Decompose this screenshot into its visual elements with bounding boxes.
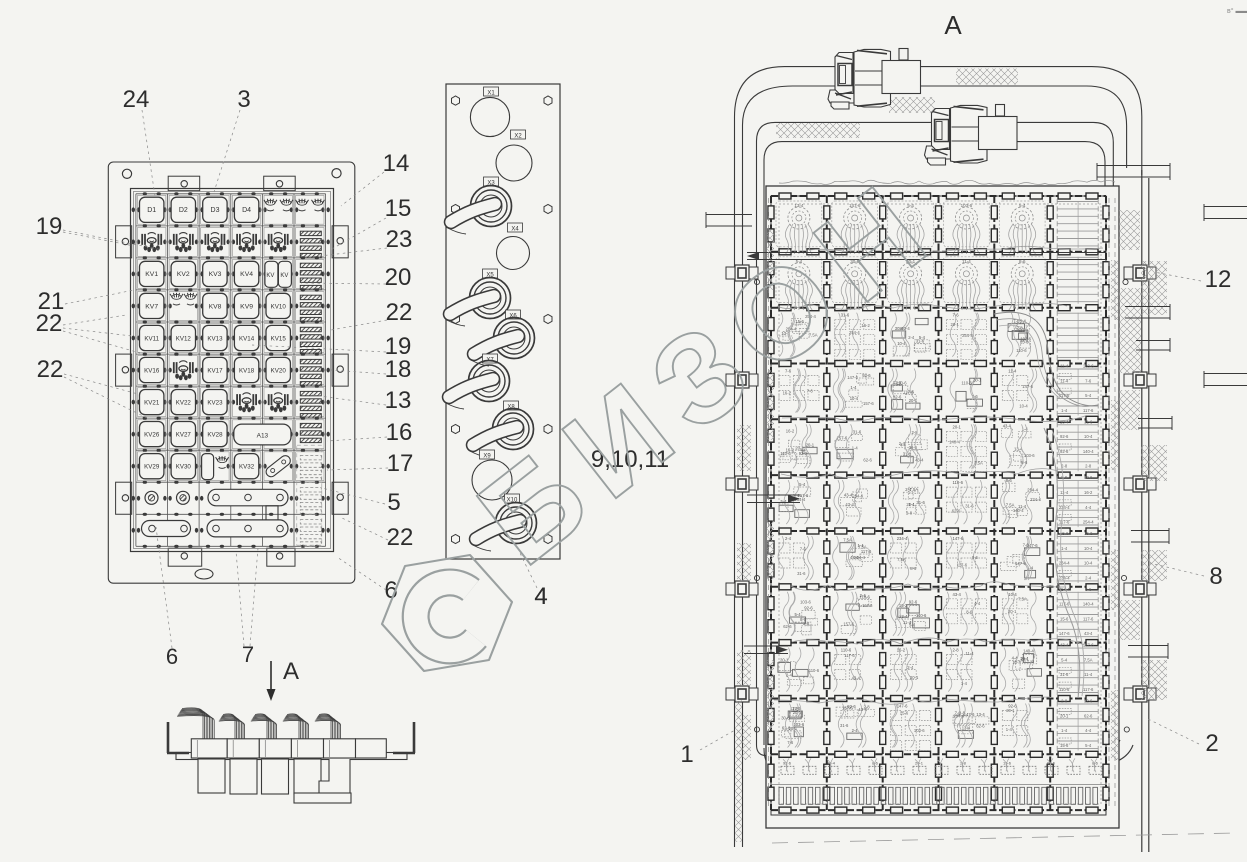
svg-text:140-4: 140-4 [1023,649,1034,654]
svg-text:KV: KV [280,273,288,279]
svg-text:15-6: 15-6 [1060,531,1069,536]
svg-text:43-4: 43-4 [852,676,861,681]
svg-text:15-6: 15-6 [1060,743,1069,748]
svg-text:62-6: 62-6 [976,723,985,728]
svg-text:92-6: 92-6 [804,605,813,610]
svg-text:117-6: 117-6 [1083,408,1094,413]
svg-text:2-4: 2-4 [1085,575,1092,580]
svg-text:2-8: 2-8 [906,511,913,516]
svg-text:234-4: 234-4 [953,713,964,718]
svg-text:2-4: 2-4 [907,665,914,670]
svg-text:11-4: 11-4 [1060,364,1069,369]
svg-text:7,5A: 7,5A [843,538,852,543]
svg-text:7-6: 7-6 [787,740,794,745]
svg-text:147-6: 147-6 [1022,384,1033,389]
svg-text:A: A [944,10,962,40]
svg-text:KV15: KV15 [271,335,287,342]
svg-text:KV16: KV16 [144,367,160,374]
svg-text:31-6: 31-6 [965,503,974,508]
svg-text:11-4: 11-4 [1060,490,1069,495]
svg-text:X2: X2 [514,134,522,140]
svg-text:1-4: 1-4 [852,445,859,450]
svg-text:13-4: 13-4 [976,712,985,717]
svg-text:16: 16 [386,419,413,446]
svg-text:147-6: 147-6 [1059,631,1070,636]
svg-text:7-6: 7-6 [807,389,814,394]
svg-text:234-4: 234-4 [897,536,908,541]
svg-text:7,5A: 7,5A [858,544,867,549]
svg-text:11-4: 11-4 [1060,378,1069,383]
svg-text:20: 20 [385,264,412,291]
svg-text:KV2: KV2 [177,271,190,278]
svg-text:92-6: 92-6 [1084,475,1093,480]
svg-text:103-6: 103-6 [914,728,925,733]
svg-text:110-6: 110-6 [809,668,820,673]
svg-text:31-6: 31-6 [853,430,862,435]
svg-text:2-4: 2-4 [908,335,915,340]
svg-text:30-6: 30-6 [909,445,918,450]
svg-text:147-6: 147-6 [847,375,858,380]
svg-text:10-4: 10-4 [1019,403,1028,408]
svg-text:KV1: KV1 [145,271,158,278]
svg-text:103-6: 103-6 [800,599,811,604]
svg-text:16-2: 16-2 [897,648,906,653]
svg-text:43-4: 43-4 [1084,631,1093,636]
svg-text:20-1: 20-1 [910,675,919,680]
svg-text:8-6: 8-6 [1085,587,1092,592]
svg-text:10-4: 10-4 [1084,561,1093,566]
svg-text:KV18: KV18 [239,367,255,374]
svg-text:D1: D1 [147,207,156,214]
svg-text:140-4: 140-4 [1013,508,1024,513]
svg-text:117-6: 117-6 [1083,687,1094,692]
svg-text:2-4: 2-4 [785,536,792,541]
svg-text:14: 14 [383,150,410,177]
svg-text:11-4: 11-4 [1084,672,1093,677]
svg-text:5-4: 5-4 [1061,657,1068,662]
svg-text:16-2: 16-2 [786,428,795,433]
svg-text:2-8: 2-8 [1061,699,1068,704]
svg-text:254-4: 254-4 [962,333,973,338]
svg-text:20-1: 20-1 [1060,713,1069,718]
svg-text:157-6: 157-6 [843,622,854,627]
svg-text:15-6: 15-6 [1020,340,1029,345]
svg-text:117-6: 117-6 [861,549,872,554]
svg-text:62-6: 62-6 [863,457,872,462]
svg-text:X1: X1 [487,91,495,97]
svg-text:8-6: 8-6 [1021,460,1028,465]
svg-text:22: 22 [387,524,414,551]
svg-text:12: 12 [1205,266,1232,293]
svg-text:11-4: 11-4 [966,651,975,656]
svg-text:13-4: 13-4 [859,707,868,712]
svg-text:31-6: 31-6 [1084,419,1093,424]
svg-text:234-4: 234-4 [854,555,865,560]
svg-text:22: 22 [37,356,64,383]
svg-text:1: 1 [680,741,693,768]
svg-text:KV21: KV21 [144,399,160,406]
svg-text:10-4: 10-4 [1084,434,1093,439]
svg-text:103-6: 103-6 [1083,364,1094,369]
svg-text:1-4: 1-4 [1061,408,1068,413]
svg-text:20-1: 20-1 [1008,609,1017,614]
svg-text:1-4: 1-4 [961,681,968,686]
svg-text:7-6: 7-6 [1085,378,1092,383]
svg-text:31-6: 31-6 [916,500,925,505]
svg-text:4-4: 4-4 [800,448,807,453]
svg-text:KV8: KV8 [209,303,222,310]
svg-text:147-6: 147-6 [964,712,975,717]
svg-text:7,5A: 7,5A [1006,503,1015,508]
svg-text:254-4: 254-4 [1027,488,1038,493]
svg-text:92-6: 92-6 [847,704,856,709]
svg-text:D2: D2 [179,207,188,214]
svg-text:D3: D3 [211,207,220,214]
svg-text:157-6: 157-6 [863,401,874,406]
svg-text:147-6: 147-6 [1015,561,1026,566]
svg-text:110-6: 110-6 [1016,348,1027,353]
svg-text:2-4: 2-4 [899,441,906,446]
svg-text:62-6: 62-6 [1084,713,1093,718]
svg-text:7-6: 7-6 [800,547,807,552]
svg-text:13: 13 [385,387,412,414]
svg-text:157-6: 157-6 [1083,643,1094,648]
svg-text:KV10: KV10 [271,303,287,310]
svg-text:17: 17 [387,450,414,477]
svg-text:KV28: KV28 [207,432,223,439]
svg-text:117-6: 117-6 [1083,616,1094,621]
svg-text:5-4: 5-4 [794,612,801,617]
svg-text:8-6: 8-6 [1061,475,1068,480]
svg-text:2-4: 2-4 [860,593,867,598]
svg-text:7-6: 7-6 [1023,543,1030,548]
svg-text:20-1: 20-1 [806,442,815,447]
svg-text:92-6: 92-6 [1084,699,1093,704]
svg-text:234-4: 234-4 [1059,561,1070,566]
svg-text:30-6: 30-6 [781,715,790,720]
svg-text:A13: A13 [257,433,269,440]
svg-text:KV26: KV26 [144,432,160,439]
svg-text:2: 2 [1205,730,1218,757]
svg-text:92-6: 92-6 [1060,449,1069,454]
svg-text:20-1: 20-1 [953,424,962,429]
svg-text:15: 15 [385,195,412,222]
svg-text:7,5A: 7,5A [1018,596,1027,601]
svg-text:62-6: 62-6 [783,624,792,629]
svg-text:20-1: 20-1 [951,322,960,327]
svg-text:1-4: 1-4 [850,385,857,390]
svg-text:92-6: 92-6 [862,373,871,378]
svg-text:5-4: 5-4 [909,622,916,627]
svg-text:KV11: KV11 [144,335,159,342]
svg-text:8-6: 8-6 [910,566,917,571]
svg-text:KV: KV [266,273,274,279]
svg-text:7,5A: 7,5A [974,461,983,466]
svg-text:23: 23 [386,226,413,253]
svg-text:2-4: 2-4 [786,672,793,677]
svg-text:110-6: 110-6 [916,613,927,618]
svg-text:5: 5 [387,489,400,516]
svg-text:110-6: 110-6 [862,603,873,608]
svg-text:D4: D4 [242,207,251,214]
svg-text:43-4: 43-4 [953,592,962,597]
svg-text:117-6: 117-6 [957,562,968,567]
svg-text:KV17: KV17 [207,367,223,374]
svg-text:KV13: KV13 [207,335,223,342]
svg-text:110-6: 110-6 [1059,687,1070,692]
svg-text:234-4: 234-4 [1059,505,1070,510]
svg-text:4-4: 4-4 [974,601,981,606]
svg-text:16-2: 16-2 [1084,490,1093,495]
svg-text:KV14: KV14 [239,335,255,342]
svg-text:KV23: KV23 [207,399,223,406]
svg-text:92-6: 92-6 [909,600,918,605]
svg-text:8-6: 8-6 [972,555,979,560]
svg-text:5-4: 5-4 [799,482,806,487]
svg-text:в° ▬▬▬: в° ▬▬▬ [1227,7,1247,15]
svg-text:5-4: 5-4 [1085,393,1092,398]
svg-text:22: 22 [386,299,413,326]
svg-text:140-4: 140-4 [899,326,910,331]
svg-text:8-6: 8-6 [966,610,973,615]
svg-text:110-6: 110-6 [896,381,907,386]
svg-text:234-4: 234-4 [1030,497,1041,502]
svg-text:103-6: 103-6 [1024,453,1035,458]
svg-text:KV3: KV3 [209,271,222,278]
svg-text:234-4: 234-4 [1059,575,1070,580]
svg-text:92-6: 92-6 [1060,434,1069,439]
svg-text:140-4: 140-4 [949,440,960,445]
svg-text:15-6: 15-6 [1060,616,1069,621]
svg-text:KV22: KV22 [176,399,192,406]
svg-text:7,5A: 7,5A [1084,657,1093,662]
svg-text:43-4: 43-4 [915,458,924,463]
svg-text:1-4: 1-4 [1006,727,1013,732]
svg-text:3: 3 [237,86,250,113]
svg-text:110-6: 110-6 [961,381,972,386]
svg-text:20-1: 20-1 [906,502,915,507]
svg-text:5-4: 5-4 [919,335,926,340]
svg-text:KV9: KV9 [240,303,253,310]
svg-text:KV29: KV29 [144,464,160,471]
svg-text:31-6: 31-6 [797,571,806,576]
svg-text:2-8: 2-8 [1085,464,1092,469]
svg-text:X4: X4 [511,227,519,233]
svg-text:22: 22 [36,310,63,337]
svg-text:KV12: KV12 [176,335,192,342]
svg-text:A: A [283,658,299,685]
svg-text:20-1: 20-1 [973,378,982,383]
svg-text:24: 24 [123,86,150,113]
svg-text:KV4: KV4 [240,271,253,278]
svg-text:117-6: 117-6 [1059,520,1070,525]
svg-text:43-4: 43-4 [1060,643,1069,648]
svg-text:4-4: 4-4 [1085,505,1092,510]
svg-text:KV32: KV32 [239,464,255,471]
svg-text:KV20: KV20 [271,367,287,374]
svg-text:140-4: 140-4 [1083,602,1094,607]
svg-text:KV27: KV27 [176,432,192,439]
svg-text:KV7: KV7 [145,303,158,310]
svg-text:31-6: 31-6 [1060,672,1069,677]
svg-text:62-6: 62-6 [952,509,961,514]
svg-text:254-4: 254-4 [852,494,863,499]
svg-text:19: 19 [36,213,63,240]
svg-text:5-4: 5-4 [1085,743,1092,748]
svg-text:10-4: 10-4 [850,396,859,401]
svg-text:20-1: 20-1 [1006,708,1015,713]
svg-text:4: 4 [534,583,547,610]
svg-text:254-4: 254-4 [1083,520,1094,525]
svg-text:7,5A: 7,5A [897,557,906,562]
svg-text:31-6: 31-6 [840,723,849,728]
svg-text:20-1: 20-1 [1021,656,1030,661]
svg-text:1-4: 1-4 [1061,728,1068,733]
svg-text:4-4: 4-4 [1085,728,1092,733]
svg-text:110-6: 110-6 [841,648,852,653]
svg-text:117-6: 117-6 [903,389,914,394]
svg-text:2-8: 2-8 [953,648,960,653]
svg-text:13-4: 13-4 [962,726,971,731]
svg-text:KV30: KV30 [176,464,192,471]
svg-text:43-4: 43-4 [845,502,854,507]
svg-text:140-4: 140-4 [1083,449,1094,454]
svg-text:10-4: 10-4 [1084,546,1093,551]
svg-text:15-6: 15-6 [900,711,909,716]
svg-text:16-2: 16-2 [1084,531,1093,536]
svg-text:117-6: 117-6 [844,653,855,658]
svg-text:8: 8 [1209,563,1222,590]
svg-text:1-4: 1-4 [1061,546,1068,551]
svg-text:18: 18 [385,356,412,383]
